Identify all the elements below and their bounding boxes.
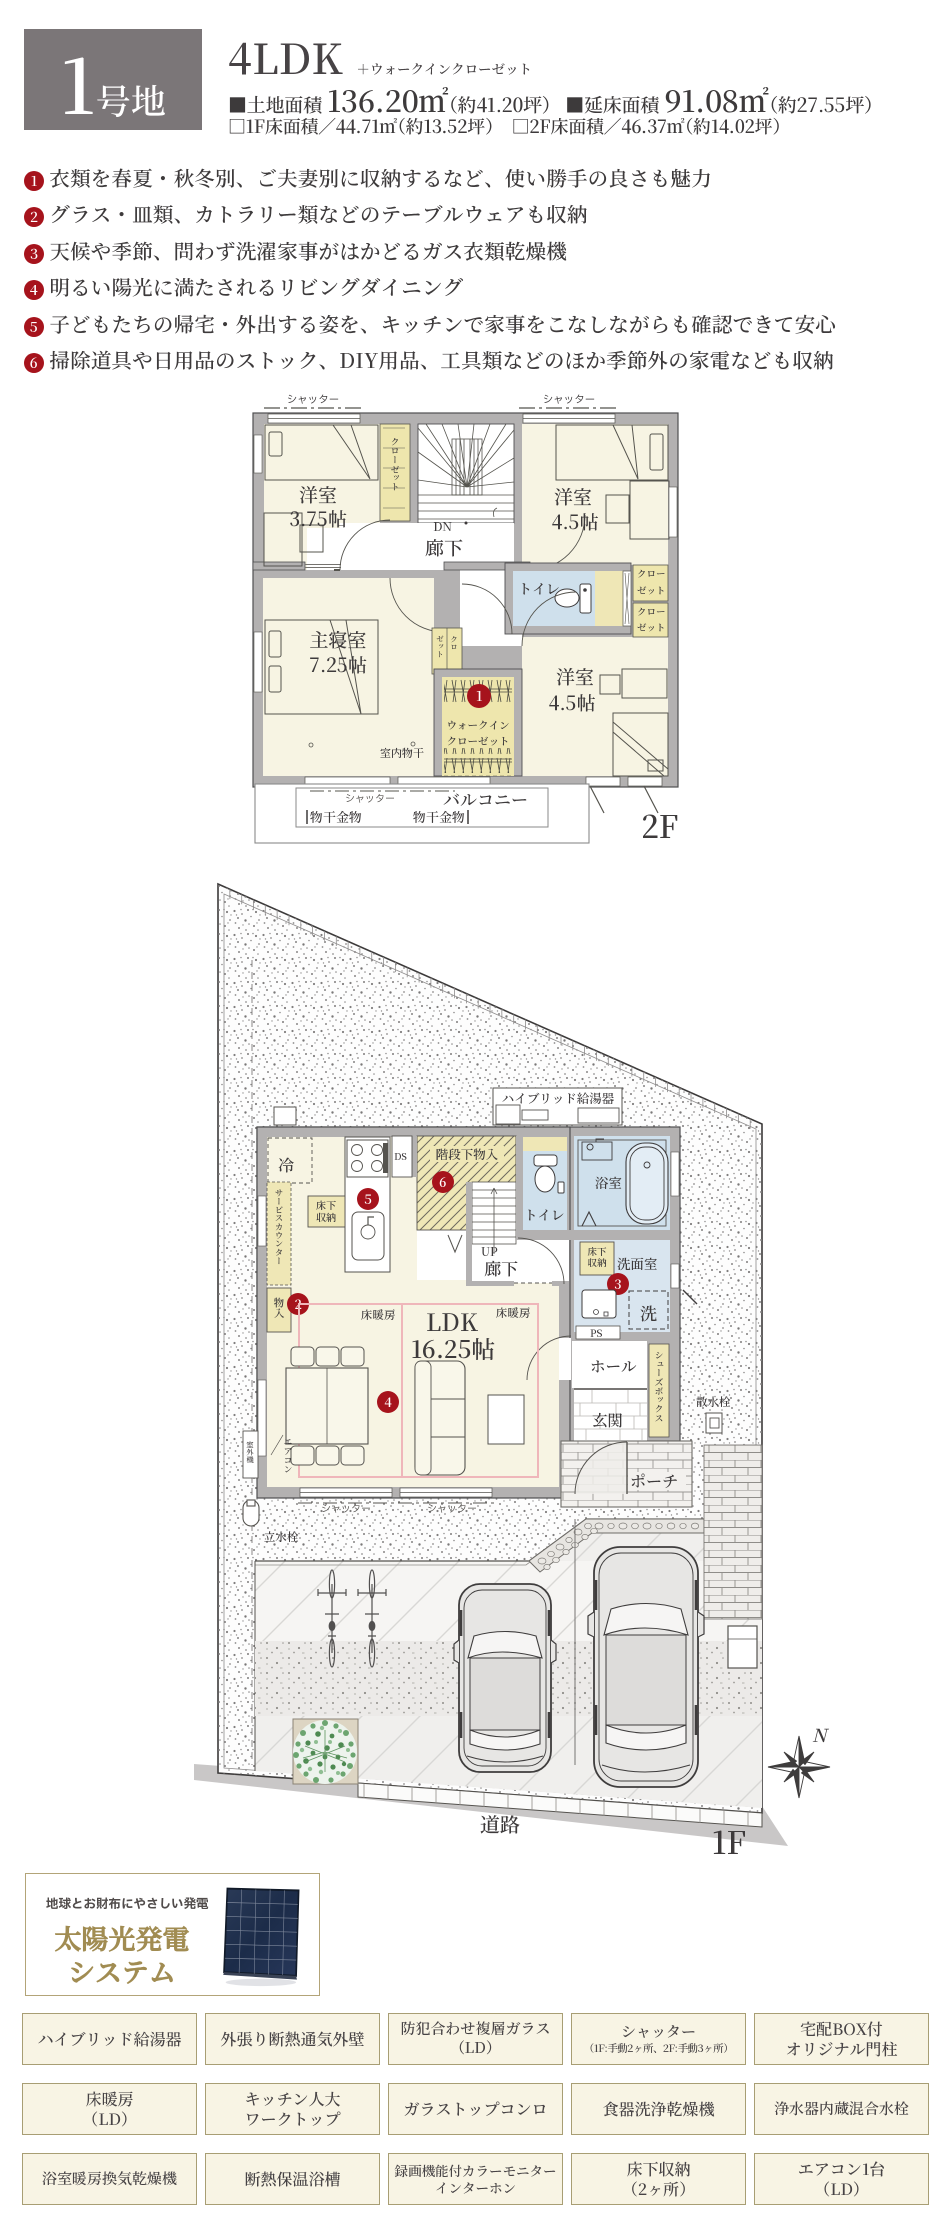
svg-text:洗: 洗: [640, 1300, 657, 1325]
svg-text:1: 1: [476, 686, 483, 706]
svg-text:廊下: 廊下: [425, 534, 463, 561]
svg-text:4: 4: [384, 1392, 392, 1411]
svg-text:主寝室: 主寝室: [309, 626, 366, 653]
svg-text:N: N: [812, 1722, 830, 1748]
svg-text:洋室: 洋室: [556, 663, 594, 690]
svg-text:7.25帖: 7.25帖: [309, 651, 367, 678]
svg-text:サービスカウンター: サービスカウンター: [273, 1188, 285, 1265]
svg-text:階段下物入: 階段下物入: [436, 1145, 499, 1163]
svg-text:1F: 1F: [712, 1818, 746, 1863]
svg-text:物入: 物入: [272, 1297, 287, 1319]
svg-text:収納: 収納: [587, 1255, 607, 1269]
svg-text:ゼット: ゼット: [435, 635, 446, 658]
svg-text:16.25帖: 16.25帖: [411, 1330, 495, 1365]
svg-text:トイレ: トイレ: [518, 579, 560, 599]
svg-text:洋室: 洋室: [299, 481, 337, 508]
svg-text:冷: 冷: [278, 1153, 295, 1176]
svg-text:洗面室: 洗面室: [617, 1253, 658, 1273]
svg-text:クローゼット: クローゼット: [389, 437, 402, 491]
svg-text:クロ: クロ: [449, 635, 460, 650]
svg-text:ウォークイン: ウォークイン: [447, 718, 510, 733]
svg-text:シャッター: シャッター: [345, 792, 395, 807]
svg-text:クローゼット: クローゼット: [447, 734, 510, 749]
svg-text:床暖房: 床暖房: [361, 1307, 396, 1323]
svg-text:5: 5: [364, 1189, 372, 1208]
svg-text:散水栓: 散水栓: [696, 1394, 731, 1410]
svg-text:シャッター: シャッター: [321, 1502, 371, 1517]
svg-text:立水栓: 立水栓: [264, 1529, 299, 1545]
svg-text:浴室: 浴室: [595, 1172, 622, 1192]
svg-text:4.5帖: 4.5帖: [552, 508, 599, 535]
svg-text:シャッター: シャッター: [427, 1502, 477, 1517]
svg-text:廊下: 廊下: [484, 1255, 518, 1280]
svg-text:2F: 2F: [641, 802, 679, 847]
svg-text:クロー: クロー: [637, 566, 666, 580]
svg-text:室外機: 室外機: [245, 1440, 256, 1463]
svg-text:PS: PS: [590, 1325, 603, 1340]
svg-text:DS: DS: [394, 1149, 407, 1163]
svg-text:物干金物: 物干金物: [310, 807, 362, 826]
svg-text:DN: DN: [433, 518, 452, 535]
svg-text:エアコン: エアコン: [282, 1437, 295, 1473]
svg-text:道路: 道路: [480, 1809, 520, 1838]
svg-text:ゼット: ゼット: [637, 583, 666, 597]
svg-text:3: 3: [614, 1274, 622, 1293]
svg-text:ホール: ホール: [590, 1355, 637, 1377]
svg-text:シャッター: シャッター: [287, 392, 340, 408]
svg-text:ゼット: ゼット: [637, 620, 666, 634]
svg-text:ハイブリッド給湯器: ハイブリッド給湯器: [502, 1089, 615, 1107]
svg-text:シューズボックス: シューズボックス: [653, 1350, 666, 1422]
svg-text:クロー: クロー: [637, 604, 666, 618]
svg-text:玄関: 玄関: [592, 1409, 624, 1431]
svg-text:トイレ: トイレ: [524, 1204, 565, 1224]
svg-text:収納: 収納: [316, 1209, 336, 1224]
svg-text:3.75帖: 3.75帖: [289, 505, 347, 532]
svg-text:床暖房: 床暖房: [496, 1305, 531, 1321]
svg-text:シャッター: シャッター: [543, 392, 596, 408]
svg-text:洋室: 洋室: [554, 483, 592, 510]
svg-text:6: 6: [439, 1172, 447, 1191]
svg-text:物干金物: 物干金物: [413, 807, 465, 826]
svg-text:4.5帖: 4.5帖: [549, 689, 596, 716]
svg-text:ポーチ: ポーチ: [630, 1469, 678, 1492]
svg-text:室内物干: 室内物干: [380, 745, 424, 761]
